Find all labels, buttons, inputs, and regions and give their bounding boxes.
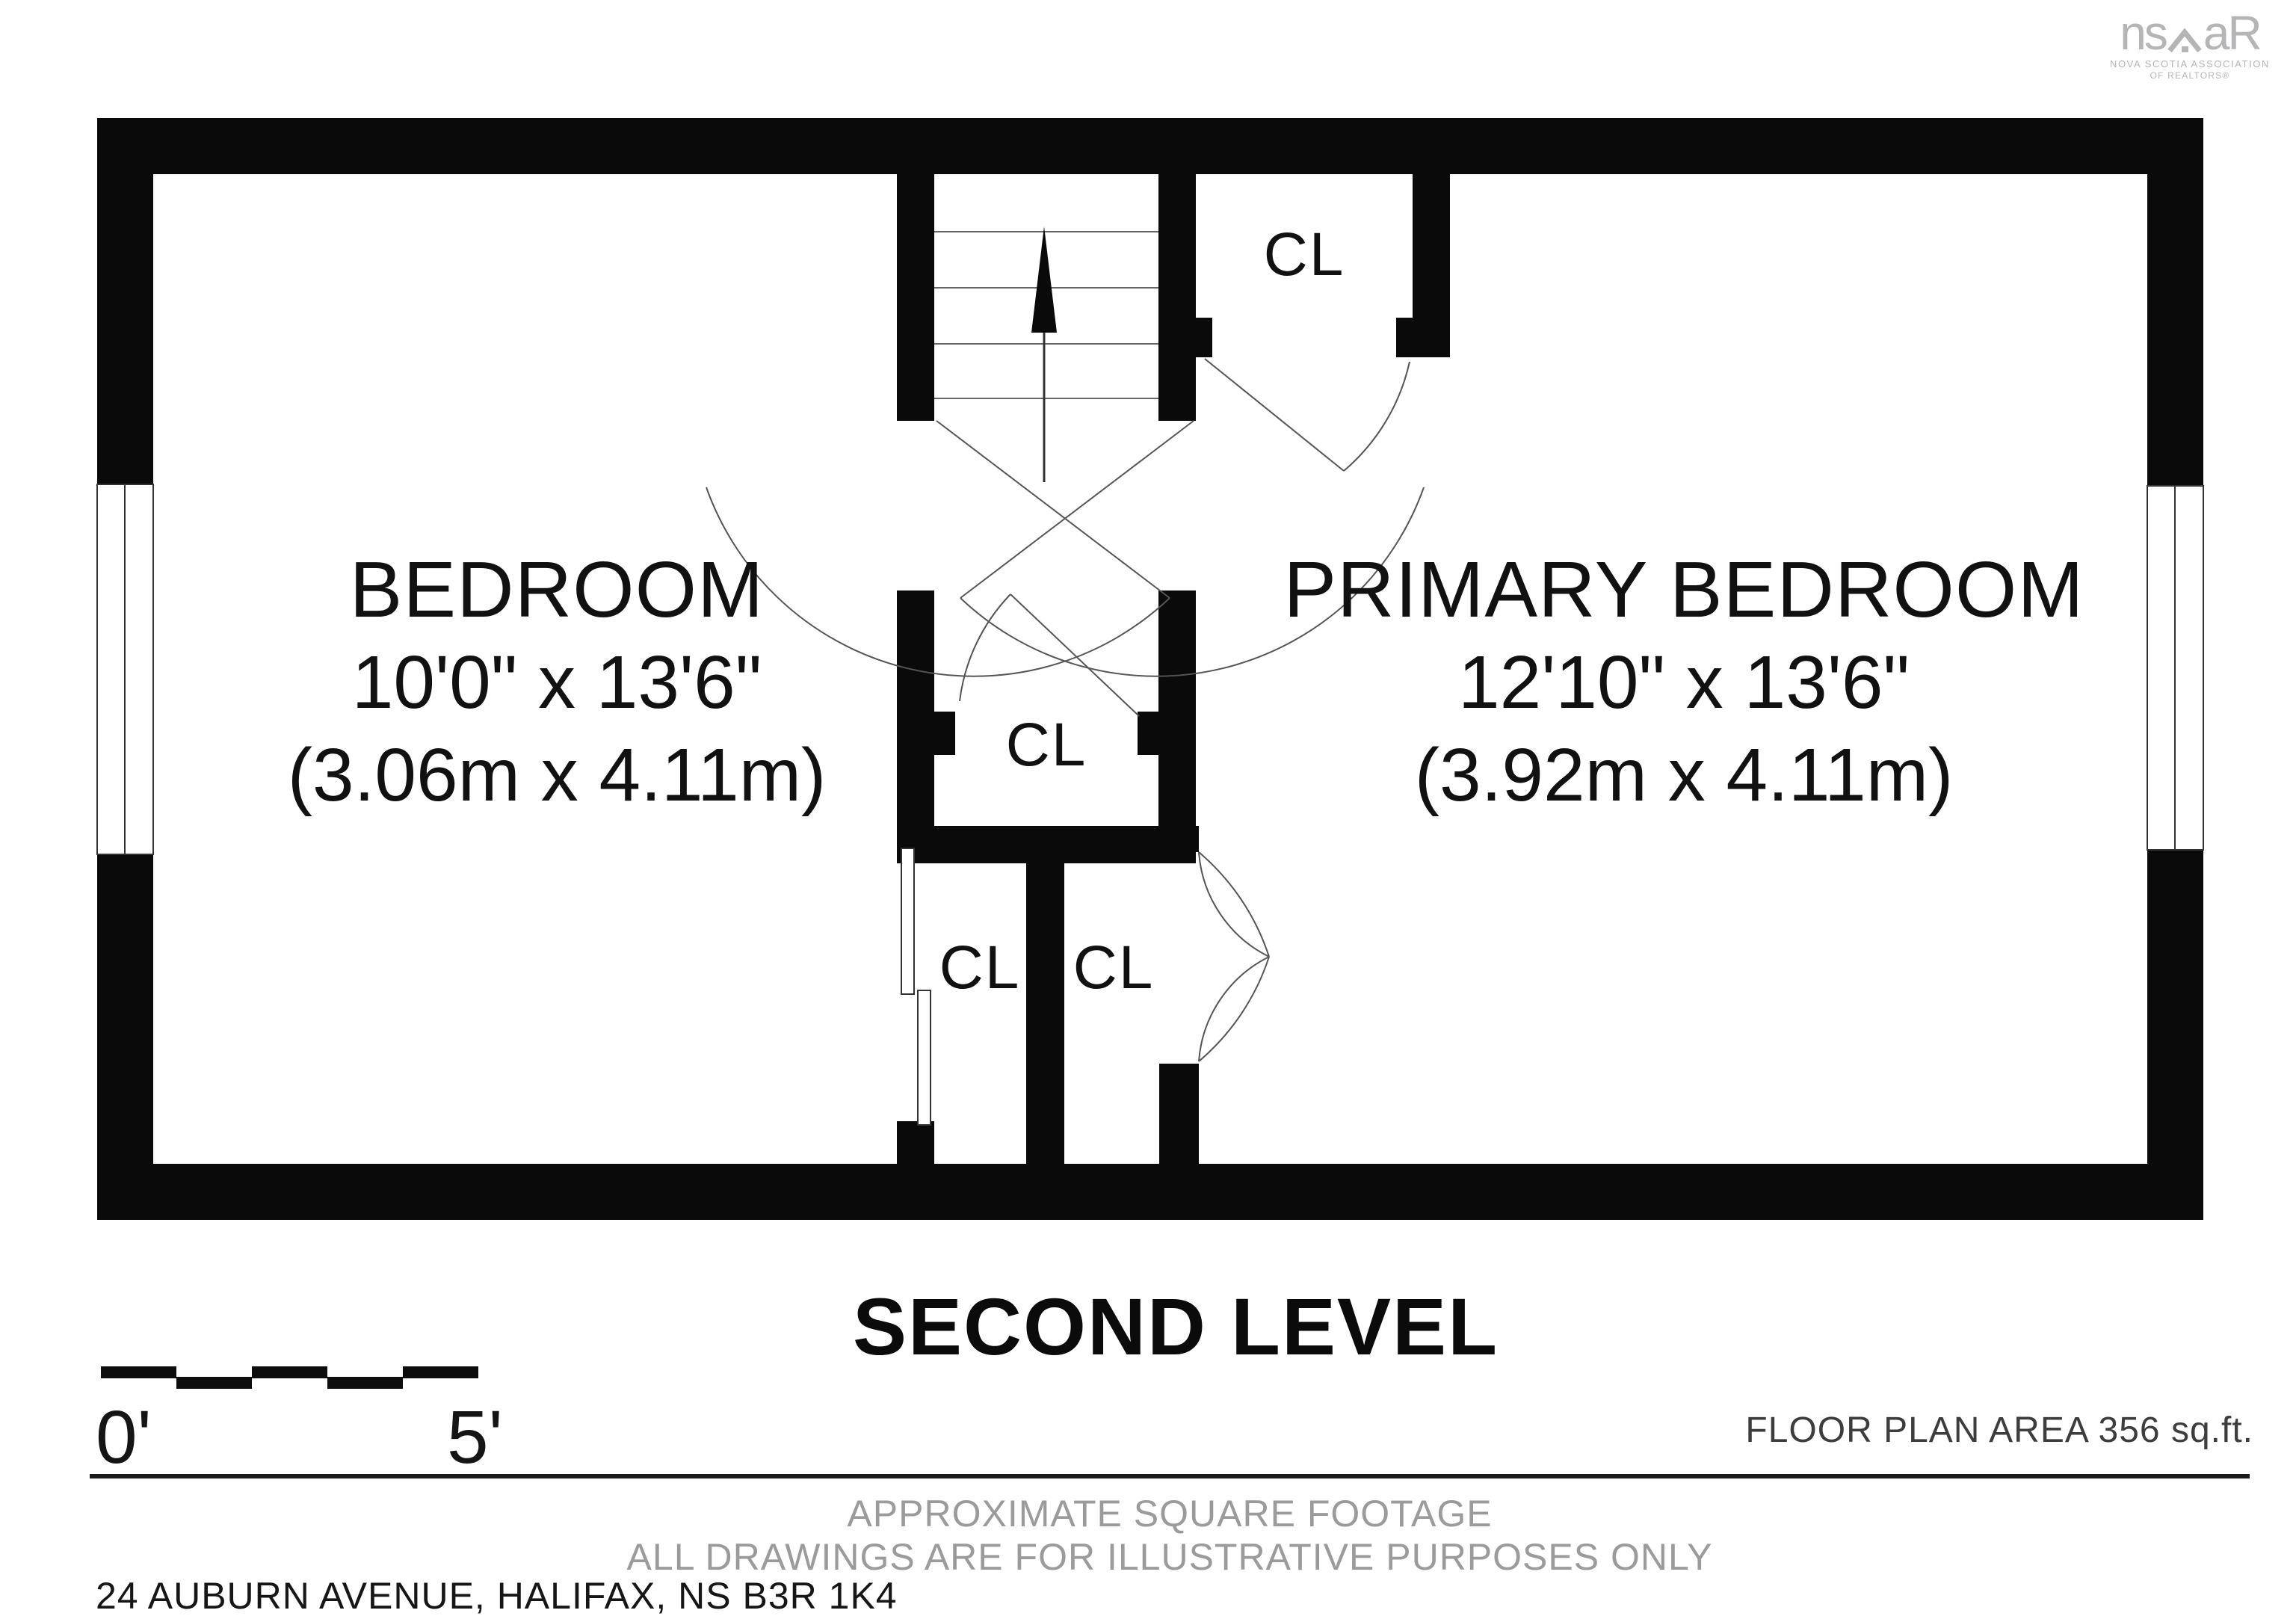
scale-label-zero: 0' — [96, 1395, 152, 1481]
jamb-closet-top-right — [1396, 318, 1413, 357]
room-dims-imperial: 12'10" x 13'6" — [1283, 636, 2084, 729]
wall-bottom — [97, 1164, 2203, 1220]
room-label-bedroom: BEDROOM 10'0" x 13'6" (3.06m x 4.11m) — [288, 544, 827, 821]
door-leaf-closet-top — [1205, 359, 1344, 471]
house-roof-icon — [2167, 27, 2202, 55]
floor-plan-page: ns aR NOVA SCOTIA ASSOCIATION OF REALTOR… — [0, 0, 2296, 1622]
wall-stair-left — [897, 174, 934, 421]
jamb-slider-bottom — [897, 1121, 934, 1164]
wall-closet-mid-left — [897, 590, 934, 863]
jamb-closet-mid-right — [1138, 712, 1158, 755]
floor-plan-area-text: FLOOR PLAN AREA 356 sq.ft. — [1745, 1410, 2253, 1451]
scale-segment — [176, 1377, 252, 1389]
stair-direction-arrow — [1031, 226, 1057, 482]
note-approximate-square-footage: APPROXIMATE SQUARE FOOTAGE — [847, 1492, 1492, 1535]
closet-label-bottom-left: CL — [939, 933, 1021, 1003]
wall-hall-right — [1158, 174, 1196, 421]
note-illustrative-purposes: ALL DRAWINGS ARE FOR ILLUSTRATIVE PURPOS… — [627, 1535, 1713, 1579]
room-name: PRIMARY BEDROOM — [1283, 544, 2084, 636]
logo-tagline-line2: OF REALTORS® — [2093, 70, 2287, 81]
wall-bottom-closet-divider — [1026, 826, 1064, 1164]
level-title: SECOND LEVEL — [853, 1280, 1499, 1373]
scale-label-five: 5' — [447, 1395, 503, 1481]
door-leaf-closet-mid — [1010, 594, 1139, 716]
room-dims-imperial: 10'0" x 13'6" — [288, 636, 827, 729]
arrow-head-icon — [1031, 226, 1057, 333]
door-arc-closet-br-4 — [1199, 957, 1269, 1061]
logo-text-right: aR — [2203, 12, 2260, 55]
wall-right-upper — [2147, 118, 2203, 486]
closet-label-top: CL — [1264, 220, 1345, 290]
property-address: 24 AUBURN AVENUE, HALIFAX, NS B3R 1K4 — [96, 1574, 898, 1618]
door-arc-closet-mid — [960, 594, 1010, 701]
footer-divider-rule — [90, 1474, 2250, 1478]
scale-segment — [327, 1377, 403, 1389]
room-label-primary-bedroom: PRIMARY BEDROOM 12'10" x 13'6" (3.92m x … — [1283, 544, 2084, 821]
wall-right-lower — [2147, 850, 2203, 1220]
door-arc-closet-br-1 — [1199, 852, 1269, 957]
wall-closet-mid-right — [1158, 590, 1196, 863]
logo-text-left: ns — [2120, 12, 2166, 55]
scale-segment — [252, 1366, 327, 1378]
door-arc-closet-br-2 — [1199, 852, 1269, 957]
wall-left-upper — [97, 118, 153, 484]
door-arc-closet-br-3 — [1199, 957, 1269, 1061]
jamb-closet-bottom-right-bottom — [1159, 1064, 1199, 1164]
nsar-logo-wordmark: ns aR — [2093, 12, 2287, 55]
door-arc-closet-top — [1344, 362, 1410, 471]
scale-bar — [101, 1366, 478, 1389]
logo-tagline-line1: NOVA SCOTIA ASSOCIATION — [2093, 58, 2287, 70]
room-dims-metric: (3.06m x 4.11m) — [288, 729, 827, 821]
door-leaf-primary — [960, 421, 1194, 598]
wall-top — [97, 118, 2203, 174]
wall-closet-top-right-stub — [1413, 174, 1450, 357]
door-leaf-bedroom — [936, 421, 1170, 598]
nsar-logo: ns aR NOVA SCOTIA ASSOCIATION OF REALTOR… — [2093, 12, 2287, 81]
scale-segment — [403, 1366, 478, 1378]
jamb-closet-bottom-right-top — [1159, 826, 1199, 852]
room-name: BEDROOM — [288, 544, 827, 636]
scale-segment — [101, 1366, 176, 1378]
closet-label-middle: CL — [1006, 710, 1087, 780]
sliding-closet-doors — [901, 848, 931, 1125]
room-dims-metric: (3.92m x 4.11m) — [1283, 729, 2084, 821]
jamb-closet-mid-left — [934, 712, 955, 755]
sliding-door-panel — [918, 990, 931, 1125]
closet-label-bottom-right: CL — [1073, 933, 1155, 1003]
sliding-door-panel — [901, 848, 914, 994]
wall-left-lower — [97, 854, 153, 1220]
jamb-hall-right — [1196, 318, 1212, 357]
